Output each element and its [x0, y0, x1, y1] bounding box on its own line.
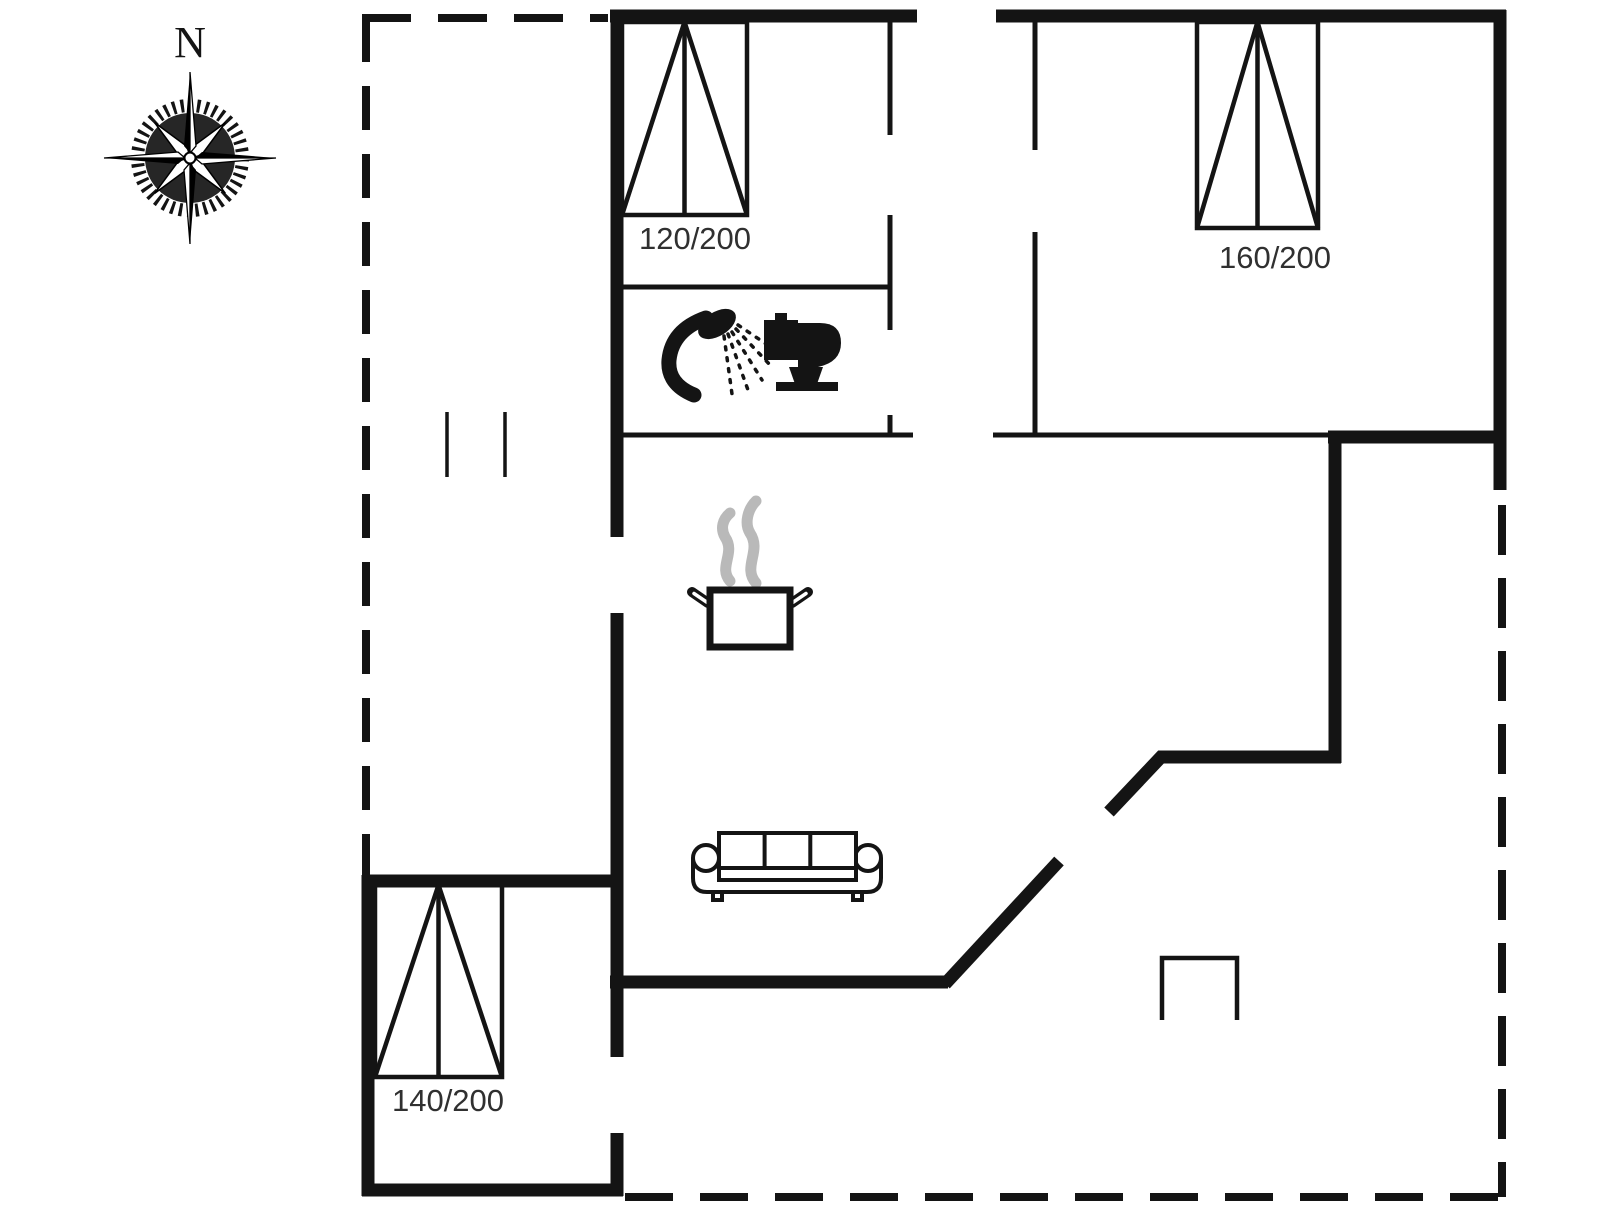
- bed-size-label-140: 140/200: [392, 1083, 504, 1118]
- wall-diagonal-upper: [1109, 757, 1341, 812]
- bed-symbol-120: [622, 22, 747, 215]
- sofa-arm-left: [693, 845, 719, 871]
- steam-left: [723, 513, 730, 581]
- toilet-tank: [764, 313, 798, 360]
- sofa-icon: [693, 833, 881, 900]
- floor-plan: 120/200 160/200 140/200: [0, 0, 1606, 1205]
- threshold-marks: [447, 412, 505, 477]
- bed-size-label-160: 160/200: [1219, 240, 1331, 275]
- compass-north-label: N: [174, 18, 206, 67]
- wall-diagonal-lower: [945, 861, 1059, 984]
- floor-plan-canvas: 120/200 160/200 140/200: [0, 0, 1606, 1205]
- toilet-icon: [764, 313, 841, 391]
- toilet-bowl: [798, 323, 841, 369]
- sofa-seat: [719, 833, 856, 880]
- bed-size-label-120: 120/200: [639, 221, 751, 256]
- compass-rose-icon: N: [104, 18, 276, 244]
- chimney-outline: [1162, 958, 1237, 1020]
- pot-body: [710, 590, 790, 647]
- cooking-pot-icon: [692, 501, 808, 647]
- steam-right: [747, 501, 756, 583]
- sofa-foot-right: [853, 892, 862, 900]
- bed-symbol-140: [375, 885, 502, 1077]
- shower-icon: [669, 303, 778, 395]
- sofa-arm-right: [855, 845, 881, 871]
- compass-center: [185, 153, 196, 164]
- toilet-pedestal: [789, 367, 823, 384]
- toilet-base: [776, 382, 838, 391]
- thick-walls: [362, 10, 1506, 1196]
- sofa-foot-left: [713, 892, 722, 900]
- bed-symbol-160: [1197, 22, 1318, 228]
